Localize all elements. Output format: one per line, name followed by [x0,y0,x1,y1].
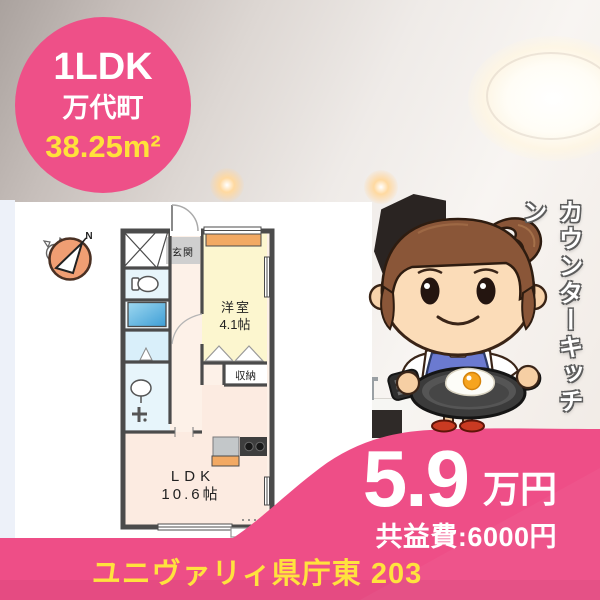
compass-north-label: N [85,231,92,242]
rent-amount: 5.9 [363,445,468,513]
summary-badge: 1LDK 万代町 38.25m² [15,17,191,193]
downlight-icon [364,170,398,204]
rent-unit: 万円 [483,471,557,513]
floor-area: 38.25m² [45,131,160,162]
feature-caption-vertical: カウンターキッチン [515,199,587,439]
hand [397,372,419,394]
property-name: ユニヴァリィ県庁東 203 [0,550,557,592]
layout-type: 1LDK [53,48,152,86]
ldk-label: LDK [171,468,215,485]
washing-machine-icon [128,303,166,327]
floorplan-drawing: N 玄関 洋室 4.1帖 収納 LDK 10.6帖 [15,202,372,600]
closet-label: 収納 [235,369,256,382]
photo-wall-strip [0,200,15,540]
price-block: 5.9 万円 共益費:6000円 [363,445,557,551]
western-room-size: 4.1帖 [219,317,250,332]
compass-icon: N [50,231,93,280]
toilet-icon [132,277,158,292]
western-room-label: 洋室 [221,300,251,315]
floorplan-card: N 玄関 洋室 4.1帖 収納 LDK 10.6帖 [15,202,372,600]
entrance-label: 玄関 [172,246,194,259]
entrance-gap [170,226,201,236]
ldk-size: 10.6帖 [161,486,220,503]
shoe [460,421,484,432]
town-name: 万代町 [63,95,144,122]
fried-egg-icon [446,369,495,396]
balcony-strip [206,234,261,246]
downlight-icon [210,168,244,202]
shoe [432,421,456,432]
common-fee: 共益費:6000円 [363,524,557,551]
listing-flyer: N 玄関 洋室 4.1帖 収納 LDK 10.6帖 1LDK 万代町 38.25… [0,0,600,600]
